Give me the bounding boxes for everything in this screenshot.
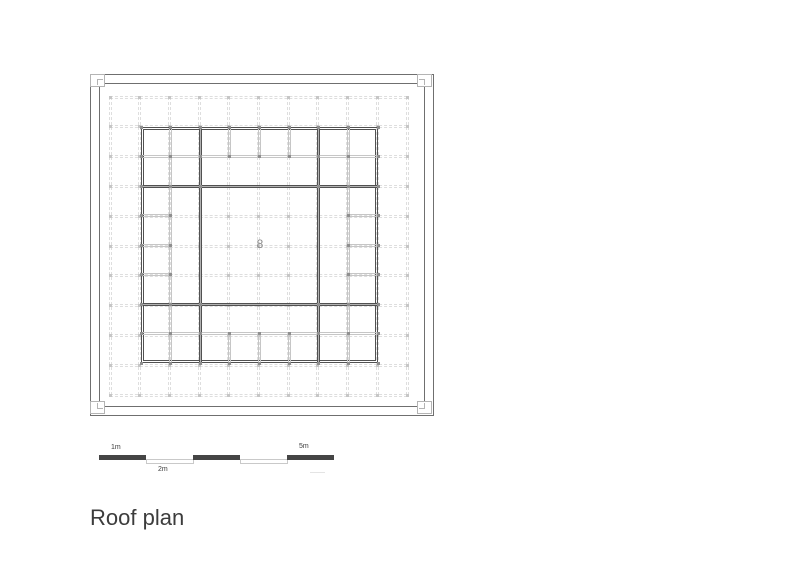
structure-node xyxy=(140,244,143,247)
grid-intersection-mark xyxy=(109,394,112,397)
grid-intersection-mark xyxy=(138,96,141,99)
joist-line xyxy=(228,127,231,158)
grid-intersection-mark xyxy=(406,125,409,128)
structure-node xyxy=(347,303,350,306)
structure-node xyxy=(169,126,172,129)
structure-node xyxy=(377,126,380,129)
beam-line-v xyxy=(199,127,202,363)
structure-node xyxy=(288,332,291,335)
structure-node xyxy=(228,126,231,129)
scale-label-2m: 2m xyxy=(158,466,168,473)
grid-intersection-mark xyxy=(406,394,409,397)
structure-node xyxy=(317,303,320,306)
structure-node xyxy=(317,332,320,335)
grid-intersection-mark xyxy=(109,334,112,337)
structure-node xyxy=(288,155,291,158)
grid-intersection-mark xyxy=(198,394,201,397)
grid-intersection-mark xyxy=(109,364,112,367)
roof-plan-sheet: 8 1m 2m 5m Roof plan xyxy=(0,0,800,566)
joist-line xyxy=(258,332,261,363)
corner-notch xyxy=(97,403,103,409)
grid-intersection-mark xyxy=(406,245,409,248)
structure-node xyxy=(317,185,320,188)
structure-node xyxy=(347,362,350,365)
structure-node xyxy=(140,185,143,188)
grid-intersection-mark xyxy=(406,155,409,158)
scale-label-5m: 5m xyxy=(299,443,309,450)
grid-intersection-mark xyxy=(257,394,260,397)
grid-intersection-mark xyxy=(376,96,379,99)
structure-node xyxy=(317,126,320,129)
grid-intersection-mark xyxy=(227,96,230,99)
structure-node xyxy=(347,155,350,158)
structure-node xyxy=(377,214,380,217)
structure-node xyxy=(169,185,172,188)
structure-node xyxy=(377,362,380,365)
structure-node xyxy=(258,126,261,129)
scale-segment-dark xyxy=(287,455,334,460)
grid-intersection-mark xyxy=(109,96,112,99)
drawing-title: Roof plan xyxy=(90,505,184,531)
joist-line xyxy=(141,214,172,217)
grid-intersection-mark xyxy=(376,394,379,397)
grid-intersection-mark xyxy=(168,96,171,99)
grid-intersection-mark xyxy=(287,96,290,99)
corner-column-symbol xyxy=(417,74,432,87)
structure-node xyxy=(140,303,143,306)
grid-intersection-mark xyxy=(109,125,112,128)
grid-intersection-mark xyxy=(109,245,112,248)
structure-node xyxy=(347,244,350,247)
joist-line xyxy=(141,244,172,247)
structure-node xyxy=(199,332,202,335)
structure-node xyxy=(347,214,350,217)
beam-line-h xyxy=(141,185,378,188)
faint-mark xyxy=(310,472,325,475)
joist-line xyxy=(347,273,378,276)
grid-intersection-mark xyxy=(227,394,230,397)
structure-node xyxy=(140,155,143,158)
structure-node xyxy=(199,362,202,365)
structure-node xyxy=(140,126,143,129)
structure-node xyxy=(347,332,350,335)
corner-notch xyxy=(419,403,425,409)
structure-node xyxy=(199,185,202,188)
structure-node xyxy=(169,244,172,247)
structure-node xyxy=(288,126,291,129)
corner-notch xyxy=(419,79,425,85)
structure-node xyxy=(140,332,143,335)
structure-node xyxy=(140,214,143,217)
grid-intersection-mark xyxy=(109,155,112,158)
structure-node xyxy=(377,185,380,188)
structure-node xyxy=(347,185,350,188)
structure-node xyxy=(377,303,380,306)
grid-intersection-mark xyxy=(406,334,409,337)
center-space-label: 8 xyxy=(250,237,270,251)
grid-intersection-mark xyxy=(406,304,409,307)
scale-segment-dark xyxy=(193,455,240,460)
joist-line xyxy=(288,127,291,158)
grid-intersection-mark xyxy=(168,394,171,397)
joist-line xyxy=(228,332,231,363)
beam-line-v xyxy=(317,127,320,363)
grid-intersection-mark xyxy=(198,96,201,99)
corner-column-symbol xyxy=(417,401,432,414)
grid-intersection-mark xyxy=(138,394,141,397)
structure-node xyxy=(258,155,261,158)
structure-node xyxy=(347,126,350,129)
structure-node xyxy=(169,155,172,158)
scale-segment-light xyxy=(240,459,288,464)
structure-node xyxy=(317,362,320,365)
corner-column-symbol xyxy=(90,74,105,87)
grid-intersection-mark xyxy=(406,185,409,188)
structure-node xyxy=(169,273,172,276)
structure-node xyxy=(199,126,202,129)
structure-node xyxy=(377,244,380,247)
joist-line xyxy=(347,214,378,217)
grid-intersection-mark xyxy=(109,185,112,188)
structure-node xyxy=(199,155,202,158)
structure-node xyxy=(140,362,143,365)
structure-node xyxy=(317,155,320,158)
beam-line-h xyxy=(141,303,378,306)
joist-line xyxy=(141,273,172,276)
structure-node xyxy=(140,273,143,276)
grid-intersection-mark xyxy=(109,304,112,307)
structure-node xyxy=(258,332,261,335)
structure-node xyxy=(258,362,261,365)
structure-node xyxy=(169,303,172,306)
joist-line xyxy=(258,127,261,158)
grid-intersection-mark xyxy=(406,96,409,99)
corner-column-symbol xyxy=(90,401,105,414)
structure-node xyxy=(228,332,231,335)
joist-line xyxy=(288,332,291,363)
joist-line xyxy=(347,244,378,247)
grid-intersection-mark xyxy=(346,96,349,99)
scale-label-1m: 1m xyxy=(111,444,121,451)
structure-node xyxy=(347,273,350,276)
grid-intersection-mark xyxy=(287,394,290,397)
structure-node xyxy=(169,362,172,365)
corner-notch xyxy=(97,79,103,85)
structure-node xyxy=(199,303,202,306)
grid-intersection-mark xyxy=(109,215,112,218)
grid-intersection-mark xyxy=(316,96,319,99)
structure-node xyxy=(169,332,172,335)
structure-node xyxy=(377,332,380,335)
structure-node xyxy=(377,273,380,276)
grid-intersection-mark xyxy=(257,96,260,99)
scale-segment-light xyxy=(146,459,194,464)
grid-intersection-mark xyxy=(406,215,409,218)
structure-node xyxy=(169,214,172,217)
scale-segment-dark xyxy=(99,455,146,460)
grid-intersection-mark xyxy=(406,274,409,277)
grid-intersection-mark xyxy=(346,394,349,397)
structure-node xyxy=(288,362,291,365)
structure-node xyxy=(228,155,231,158)
grid-intersection-mark xyxy=(109,274,112,277)
grid-intersection-mark xyxy=(316,394,319,397)
structure-node xyxy=(228,362,231,365)
structure-node xyxy=(377,155,380,158)
grid-intersection-mark xyxy=(406,364,409,367)
